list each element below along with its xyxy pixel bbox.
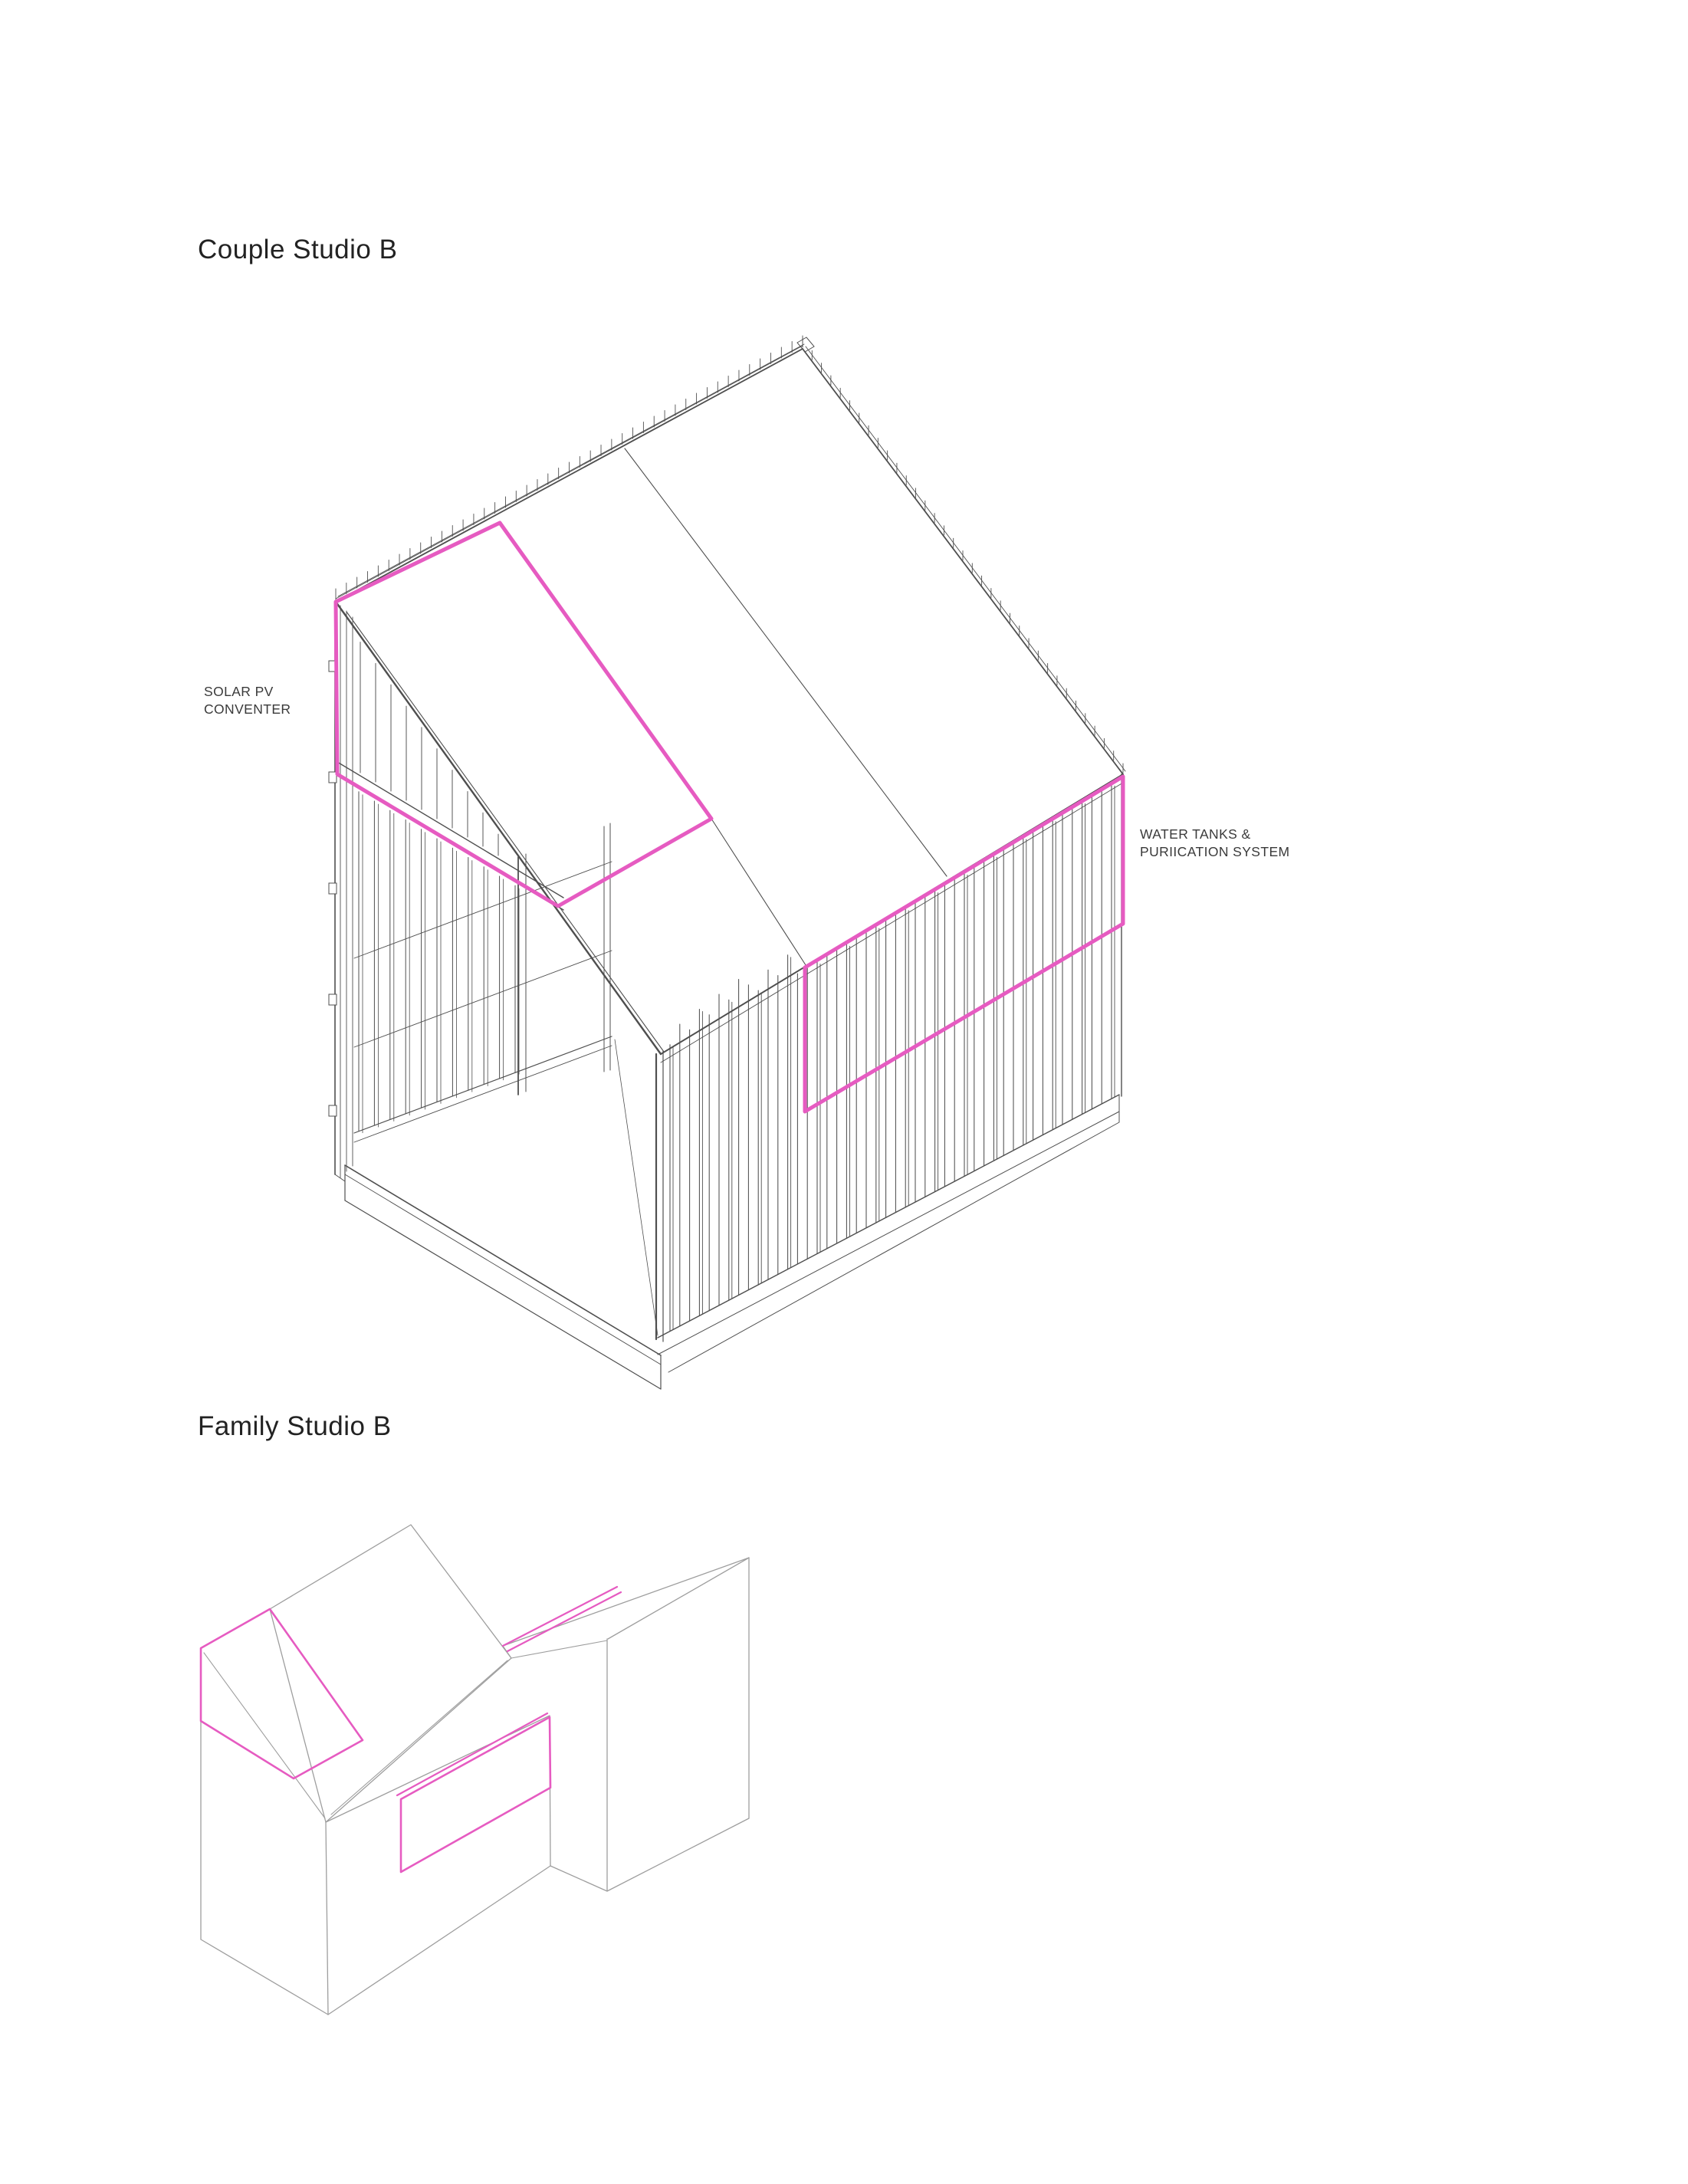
gable-slat-fringe <box>803 338 1125 773</box>
drawing-couple-studio-b <box>329 336 1125 1389</box>
family-right-house <box>503 1558 749 1891</box>
family-left-house <box>201 1525 607 2015</box>
porch-wall-rails <box>354 862 612 1142</box>
right-wall-base <box>658 1095 1119 1338</box>
family-awning-fold-line <box>397 1713 547 1795</box>
porch-wall-studs <box>359 642 519 1133</box>
floor-deck <box>345 1165 661 1389</box>
door-frame <box>518 823 658 1335</box>
family-awning-highlight <box>401 1717 550 1872</box>
gable-rafter <box>336 602 661 1054</box>
right-wall-plinth <box>658 1095 1119 1372</box>
drawing-sheet: Couple Studio B Family Studio B SOLAR PV… <box>0 0 1688 2184</box>
roof-outline <box>336 349 1123 1054</box>
family-solar-highlight <box>201 1609 363 1778</box>
family-highlights <box>201 1587 621 1872</box>
ridge-inner-line <box>338 344 804 596</box>
roof-seam <box>625 448 947 876</box>
right-wall-top-edge-inner <box>661 783 1123 1062</box>
solar-pv-highlight <box>336 523 711 906</box>
right-wall-slats <box>670 783 1115 1331</box>
drawing-family-studio-b <box>201 1525 749 2015</box>
architectural-drawings <box>0 0 1688 2184</box>
roof-seam-2 <box>711 819 807 967</box>
